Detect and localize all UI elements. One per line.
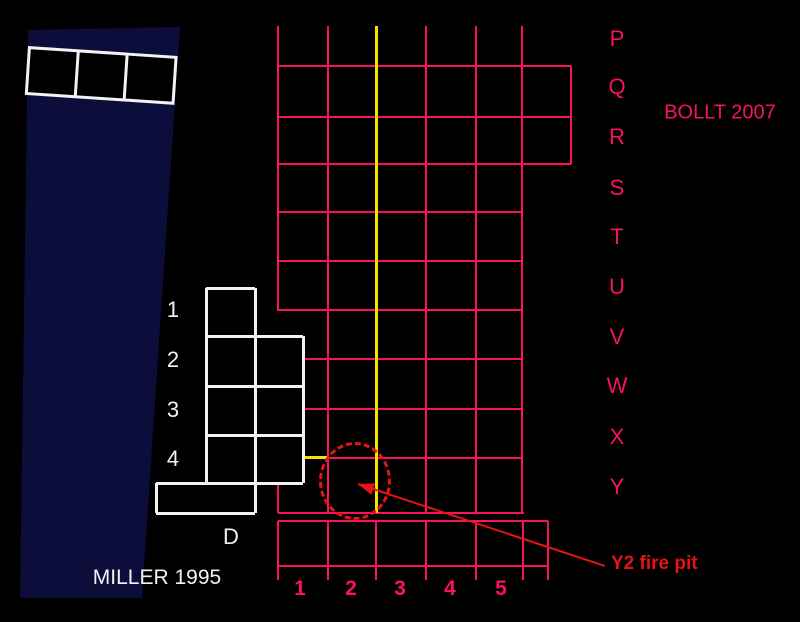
grid-line-horizontal [278, 309, 522, 312]
fire-pit-label: Y2 fire pit [611, 553, 698, 575]
excavation-site-map: BOLLT 2007 MILLER 1995 Y2 fire pit D PQR… [0, 0, 800, 622]
tilted-trench-cell [28, 49, 77, 95]
trench-line-vertical [155, 483, 158, 513]
trench-line-horizontal [206, 434, 303, 437]
grid-line-horizontal [278, 408, 522, 411]
grid-column-label-5: 5 [495, 577, 507, 601]
fire-pit-circle [319, 442, 391, 520]
grid-column-label-4: 4 [444, 577, 456, 601]
trench-line-vertical [302, 336, 305, 483]
grid-line-vertical [521, 26, 524, 513]
grid-line-horizontal [278, 520, 548, 523]
grid-line-horizontal [278, 358, 522, 361]
trench-row-label-3: 3 [167, 397, 179, 423]
grid-row-label-S: S [610, 175, 625, 201]
trench-line-horizontal [206, 287, 255, 290]
grid-row-label-W: W [607, 373, 628, 399]
grid-row-label-P: P [610, 26, 625, 52]
trench-line-horizontal [156, 512, 255, 515]
grid-line-horizontal [278, 163, 571, 166]
grid-row-label-T: T [610, 224, 623, 250]
tilted-trench-strip [25, 46, 178, 105]
fire-pit-arrow-line [358, 483, 606, 567]
trench-row-label-1: 1 [167, 297, 179, 323]
grid-line-horizontal [278, 512, 524, 515]
trench-line-horizontal [206, 385, 303, 388]
grid-line-vertical [277, 26, 280, 311]
trench-line-vertical [254, 288, 257, 513]
tilted-trench-cell [77, 52, 126, 98]
grid-line-horizontal [278, 65, 571, 68]
trench-d-label: D [223, 524, 239, 550]
grid-column-label-3: 3 [394, 577, 406, 601]
grid-line-vertical [327, 521, 330, 580]
grid-line-vertical [475, 521, 478, 580]
grid-line-horizontal [278, 260, 522, 263]
grid-row-label-X: X [610, 424, 625, 450]
grid-row-label-Y: Y [610, 474, 625, 500]
grid-column-label-2: 2 [345, 577, 357, 601]
tilted-trench-cell [126, 56, 175, 102]
grid-row-label-Q: Q [608, 74, 625, 100]
grid-row-label-R: R [609, 124, 625, 150]
bollt-label: BOLLT 2007 [664, 102, 776, 125]
grid-line-vertical [425, 521, 428, 580]
grid-line-vertical [375, 521, 378, 580]
grid-line-vertical [425, 26, 428, 513]
grid-column-label-1: 1 [294, 577, 306, 601]
trench-row-label-4: 4 [167, 446, 179, 472]
miller-label: MILLER 1995 [93, 566, 221, 590]
grid-line-horizontal [278, 211, 522, 214]
grid-line-vertical [327, 26, 330, 513]
trench-fill [156, 483, 255, 513]
grid-line-vertical [475, 26, 478, 513]
grid-line-horizontal [278, 565, 548, 568]
trench-fill [206, 288, 255, 336]
trench-line-horizontal [206, 335, 303, 338]
section-line-vertical [375, 26, 378, 513]
grid-line-vertical [277, 521, 280, 580]
grid-row-label-U: U [609, 274, 625, 300]
grid-row-label-V: V [610, 324, 625, 350]
trench-line-horizontal [156, 482, 303, 485]
trench-row-label-2: 2 [167, 347, 179, 373]
grid-line-vertical [547, 521, 550, 580]
grid-line-vertical [522, 521, 525, 580]
grid-line-horizontal [278, 116, 571, 119]
